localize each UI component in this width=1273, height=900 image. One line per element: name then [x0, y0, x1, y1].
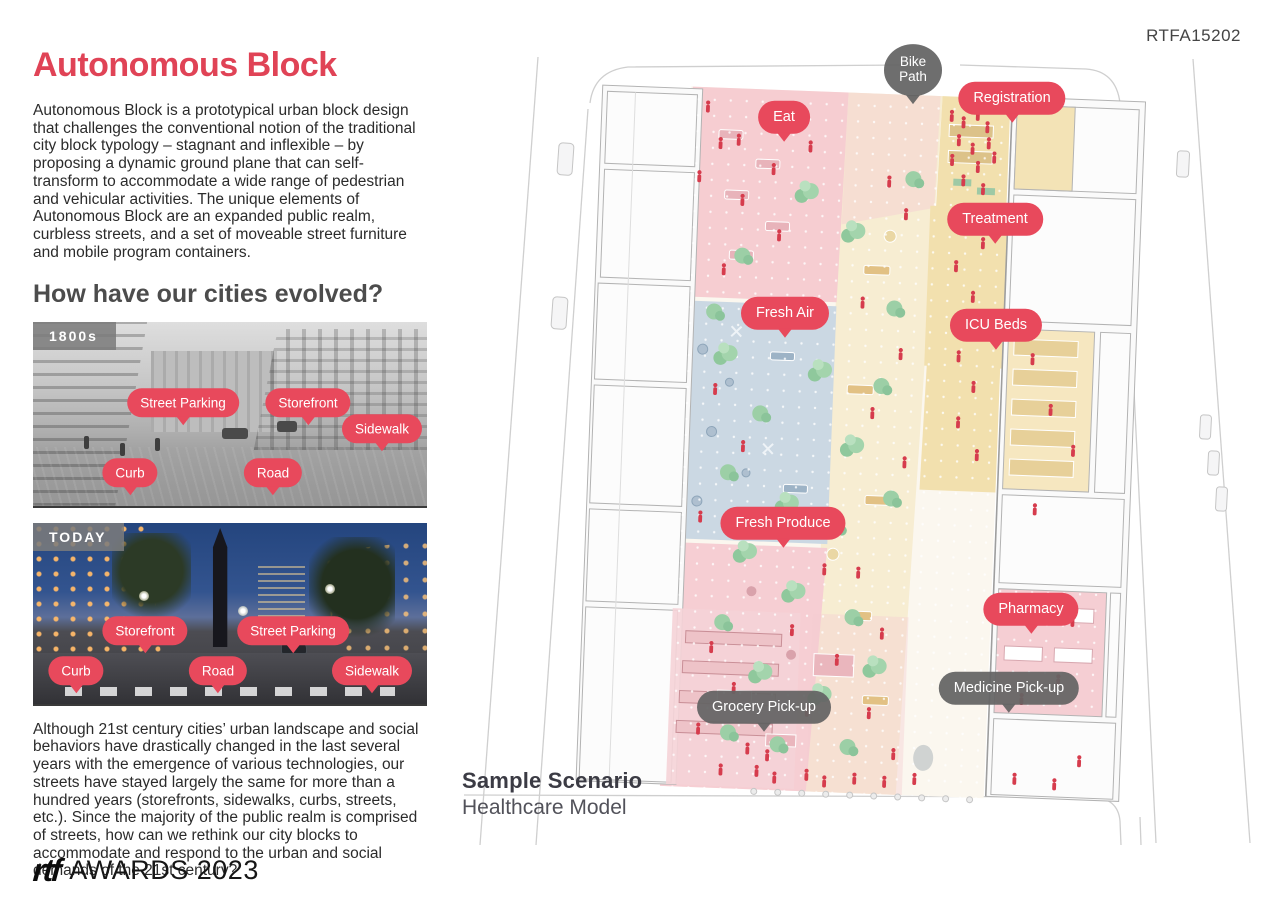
callout-road: Road: [189, 656, 247, 686]
callout-eat: Eat: [758, 101, 810, 134]
rtf-logo-mark: rtf: [32, 852, 61, 889]
awards-logo-text: AWARDS 2023: [69, 855, 259, 886]
photo-crosswalk: [65, 687, 396, 696]
callout-registration: Registration: [958, 82, 1065, 115]
callout-street-parking: Street Parking: [237, 616, 349, 646]
callout-pharmacy: Pharmacy: [983, 593, 1078, 626]
callout-sidewalk: Sidewalk: [332, 656, 412, 686]
photo-card-1800s: 1800s Street Parking Storefront Sidewalk…: [33, 322, 427, 508]
callout-icu-beds: ICU Beds: [950, 309, 1042, 342]
entry-code: RTFA15202: [1146, 26, 1241, 46]
page-title: Autonomous Block: [33, 46, 427, 85]
scenario-caption: Sample Scenario Healthcare Model: [462, 768, 642, 820]
callout-storefront: Storefront: [265, 388, 350, 418]
scenario-subtitle: Healthcare Model: [462, 796, 642, 820]
photo-figure: [155, 438, 160, 451]
callout-bike-path: Bike Path: [884, 44, 942, 96]
callout-treatment: Treatment: [947, 203, 1043, 236]
callout-sidewalk: Sidewalk: [342, 414, 422, 444]
callout-fresh-produce: Fresh Produce: [720, 507, 845, 540]
photo-road: [33, 447, 427, 506]
callout-street-parking: Street Parking: [127, 388, 239, 418]
intro-paragraph: Autonomous Block is a prototypical urban…: [33, 102, 427, 262]
callout-grocery-pickup: Grocery Pick-up: [697, 691, 831, 724]
registration-room: [1014, 105, 1075, 191]
photo-figure: [120, 443, 125, 456]
era-badge-1800s: 1800s: [33, 322, 116, 350]
photo-card-today: TODAY Storefront Street Parking Curb Roa…: [33, 523, 427, 706]
callout-medicine-pickup: Medicine Pick-up: [939, 672, 1079, 705]
photo-street-lamp: [238, 606, 248, 616]
scenario-title: Sample Scenario: [462, 768, 642, 794]
callout-curb: Curb: [48, 656, 103, 686]
callout-fresh-air: Fresh Air: [741, 297, 829, 330]
photo-figure: [84, 436, 89, 449]
urban-block-illustration: [440, 55, 1273, 845]
left-column: Autonomous Block Autonomous Block is a p…: [33, 46, 427, 898]
photo-street-lamp: [325, 584, 335, 594]
era-badge-today: TODAY: [33, 523, 124, 551]
photo-carriage: [222, 428, 248, 439]
callout-curb: Curb: [102, 458, 157, 488]
callout-road: Road: [244, 458, 302, 488]
presentation-board: RTFA15202 Autonomous Block Autonomous Bl…: [0, 0, 1273, 900]
section-heading: How have our cities evolved?: [33, 280, 427, 309]
callout-storefront: Storefront: [102, 616, 187, 646]
photo-carriage: [277, 421, 297, 432]
awards-logo: rtf AWARDS 2023: [33, 852, 259, 889]
